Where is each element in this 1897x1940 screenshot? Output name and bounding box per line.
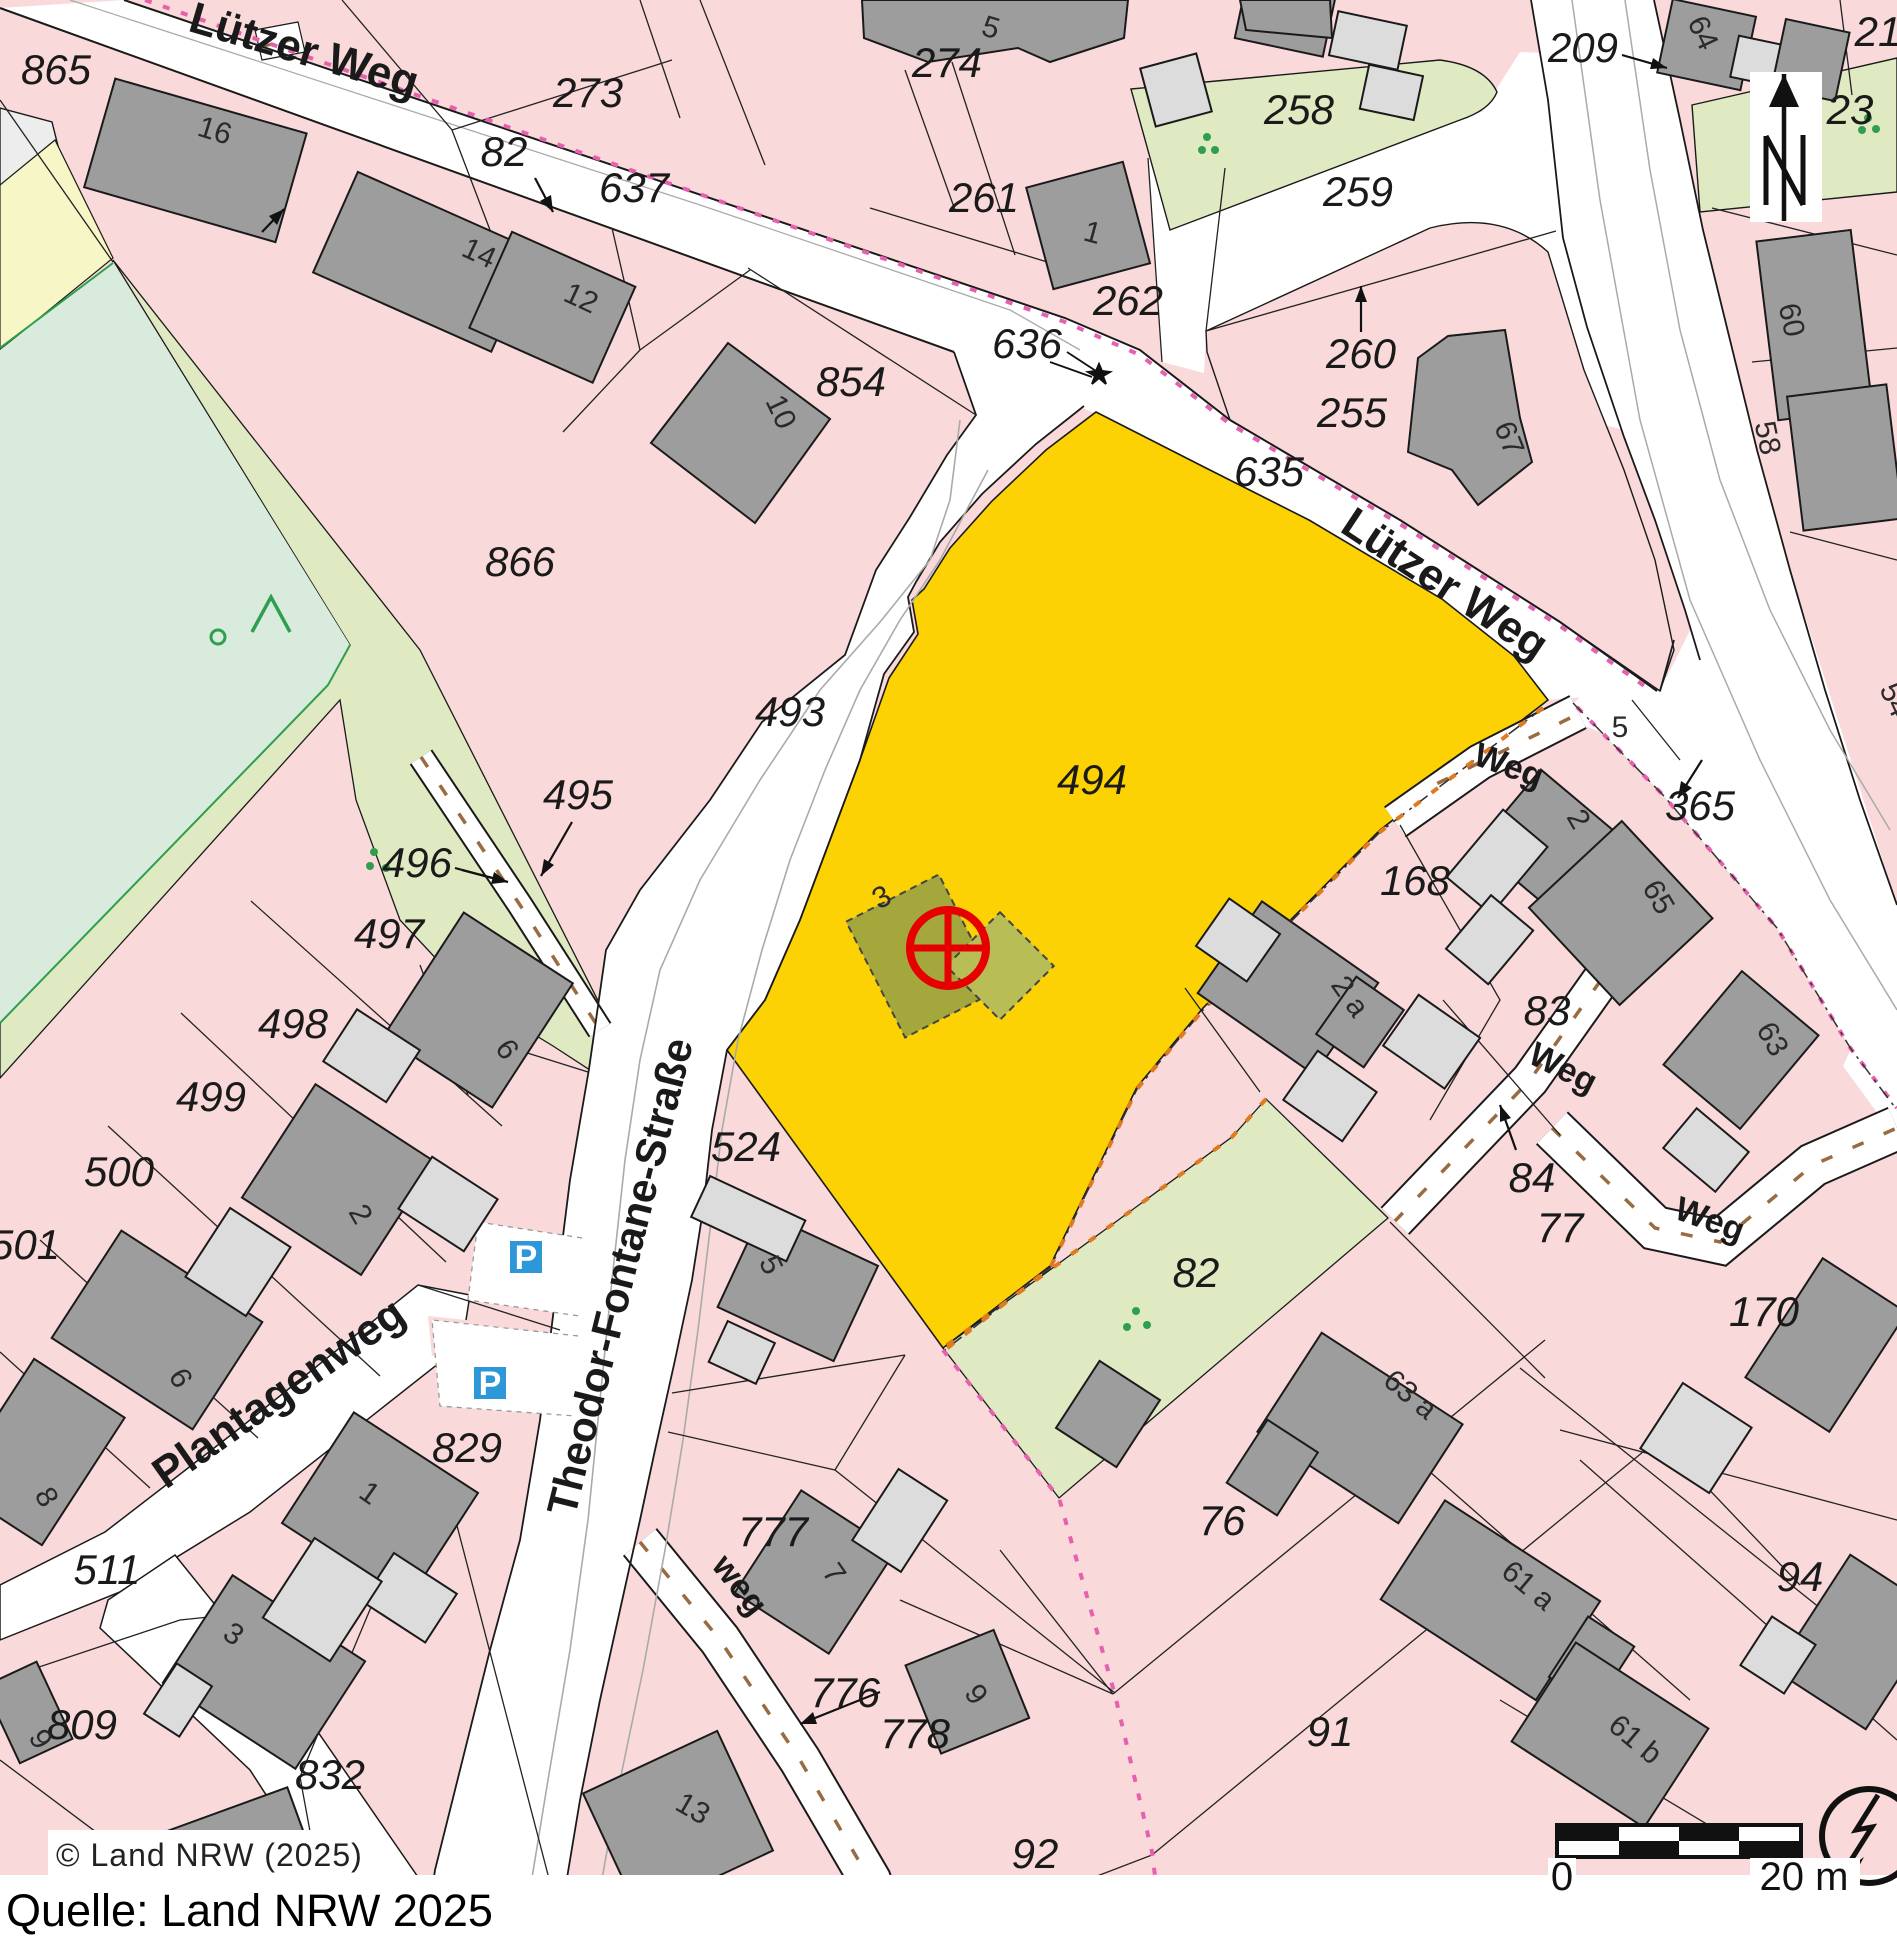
svg-text:P: P: [515, 1239, 538, 1277]
svg-text:778: 778: [880, 1710, 951, 1757]
svg-text:495: 495: [543, 771, 614, 818]
svg-text:168: 168: [1380, 857, 1451, 904]
svg-text:170: 170: [1729, 1288, 1800, 1335]
svg-text:809: 809: [47, 1701, 117, 1748]
svg-text:777: 777: [738, 1508, 810, 1555]
svg-text:262: 262: [1092, 277, 1163, 324]
svg-text:497: 497: [354, 910, 426, 957]
svg-text:94: 94: [1777, 1553, 1824, 1600]
svg-text:500: 500: [84, 1148, 155, 1195]
svg-text:494: 494: [1057, 756, 1127, 803]
svg-text:854: 854: [816, 358, 886, 405]
svg-text:493: 493: [755, 688, 825, 735]
svg-text:832: 832: [295, 1751, 365, 1798]
svg-text:0: 0: [1551, 1855, 1573, 1899]
svg-text:524: 524: [711, 1123, 781, 1170]
svg-text:637: 637: [599, 164, 671, 211]
svg-text:258: 258: [1263, 86, 1335, 133]
svg-text:76: 76: [1199, 1497, 1246, 1544]
svg-text:498: 498: [258, 1000, 329, 1047]
svg-text:23: 23: [1826, 86, 1874, 133]
svg-text:365: 365: [1665, 782, 1736, 829]
svg-text:260: 260: [1325, 330, 1397, 377]
svg-text:Quelle: Land NRW 2025: Quelle: Land NRW 2025: [6, 1885, 493, 1936]
svg-text:© Land NRW (2025): © Land NRW (2025): [56, 1837, 363, 1873]
svg-text:21: 21: [1854, 8, 1897, 55]
svg-text:866: 866: [485, 538, 556, 585]
svg-text:273: 273: [552, 69, 623, 116]
svg-text:209: 209: [1547, 24, 1618, 71]
svg-text:636: 636: [992, 320, 1063, 367]
svg-text:635: 635: [1234, 448, 1305, 495]
svg-text:84: 84: [1509, 1154, 1556, 1201]
svg-text:261: 261: [948, 174, 1019, 221]
svg-text:499: 499: [176, 1073, 246, 1120]
svg-text:91: 91: [1307, 1708, 1354, 1755]
svg-text:5: 5: [1612, 711, 1629, 744]
svg-text:82: 82: [1173, 1249, 1220, 1296]
svg-text:829: 829: [432, 1424, 502, 1471]
svg-text:511: 511: [74, 1546, 141, 1593]
svg-text:20 m: 20 m: [1760, 1855, 1849, 1899]
svg-text:83: 83: [1524, 987, 1571, 1034]
svg-text:496: 496: [382, 839, 453, 886]
svg-text:274: 274: [911, 39, 982, 86]
svg-text:58: 58: [1748, 418, 1787, 458]
svg-text:865: 865: [21, 46, 92, 93]
svg-text:82: 82: [481, 128, 528, 175]
svg-text:776: 776: [810, 1669, 881, 1716]
svg-text:501: 501: [0, 1221, 60, 1268]
svg-text:60: 60: [1772, 300, 1811, 340]
svg-text:P: P: [479, 1365, 502, 1403]
svg-text:92: 92: [1012, 1830, 1059, 1877]
svg-text:77: 77: [1537, 1204, 1585, 1251]
svg-text:259: 259: [1322, 168, 1393, 215]
svg-text:255: 255: [1316, 389, 1388, 436]
